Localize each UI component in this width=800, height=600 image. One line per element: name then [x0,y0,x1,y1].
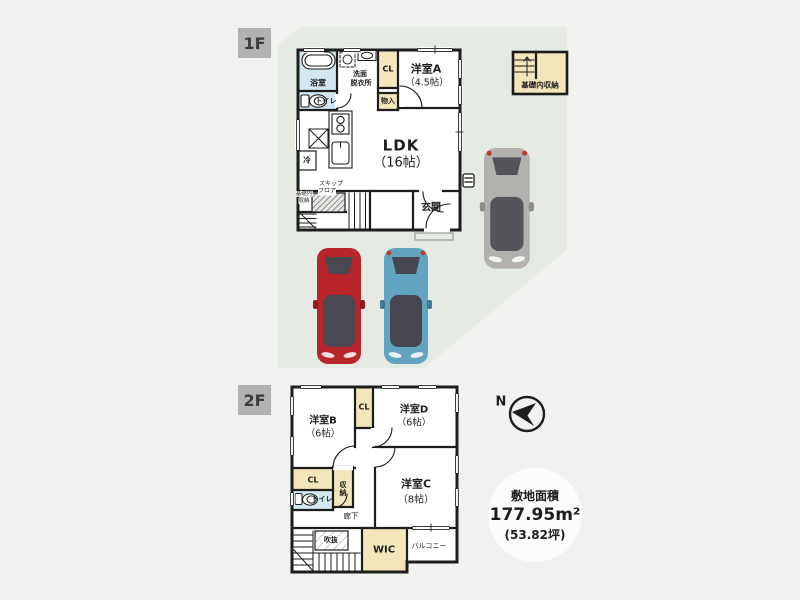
north-arrow-icon [510,397,544,431]
car-red [313,248,365,364]
floor1-tag: 1F [238,28,271,58]
room-size-room-c: （8帖） [398,494,434,506]
bathtub-icon [302,52,335,69]
base-storage-label-1: 基礎内 [296,191,313,197]
floor-plan-canvas: 1F 2F 浴室 洗面 脱衣所 CL 洋室A （4.5帖） トイレ 物入 LDK… [0,0,800,600]
fridge-label: 冷 [303,157,311,166]
floor-plan-drawing [0,0,800,600]
foundation-storage-label: 基礎内収納 [521,82,559,91]
site-area-value: 177.95m² [490,506,581,526]
room-label-washroom-1: 洗面 [353,70,367,78]
room-label-room-b: 洋室B [309,415,337,427]
void-label: 吹抜 [323,536,339,544]
room-label-room-c: 洋室C [401,479,431,492]
room-label-wic: WIC [373,544,395,556]
north-label: N [496,396,507,411]
site-area-title: 敷地面積 [511,490,559,504]
room-label-room-d: 洋室D [400,404,428,416]
room-label-toilet-1f: トイレ [316,97,337,105]
room-size-ldk: （16帖） [373,157,429,172]
car-blue [380,248,432,364]
washing-machine-icon [340,52,355,67]
kitchen-counter [329,111,352,168]
room-label-entrance: 玄関 [421,202,441,214]
room-size-room-a: （4.5帖） [405,79,449,90]
room-label-closet-top: CL [359,402,370,411]
room-size-room-b: （6帖） [306,430,341,441]
skip-floor-label-2: フロア [318,189,336,196]
cabinet-icon [309,129,328,148]
room-label-room-a: 洋室A [411,64,442,77]
washbasin-icon [358,51,376,61]
room-label-toilet-2f: トイレ [312,495,333,503]
room-label-ldk: LDK [383,137,420,154]
stove-icon [332,114,349,134]
kitchen-sink-icon [332,142,349,164]
room-label-washroom-2: 脱衣所 [351,79,372,87]
room-label-bath: 浴室 [310,78,326,87]
skip-floor-hatch [312,193,345,212]
room-label-storage-small: 物入 [381,97,395,105]
room-label-storage: 収納 [339,481,347,497]
base-storage-label-2: 収納 [298,198,309,204]
hallway-label: 廊下 [344,513,359,522]
balcony-label: バルコニー [412,542,447,550]
room-size-room-d: （6帖） [397,419,432,430]
site-area-tsubo: (53.82坪) [505,529,566,543]
floor2-tag: 2F [238,385,271,415]
electric-meter-icon [463,174,474,187]
room-label-closet-mid: CL [308,475,319,484]
car-gray [480,148,534,269]
room-label-closet-1f: CL [383,64,394,73]
